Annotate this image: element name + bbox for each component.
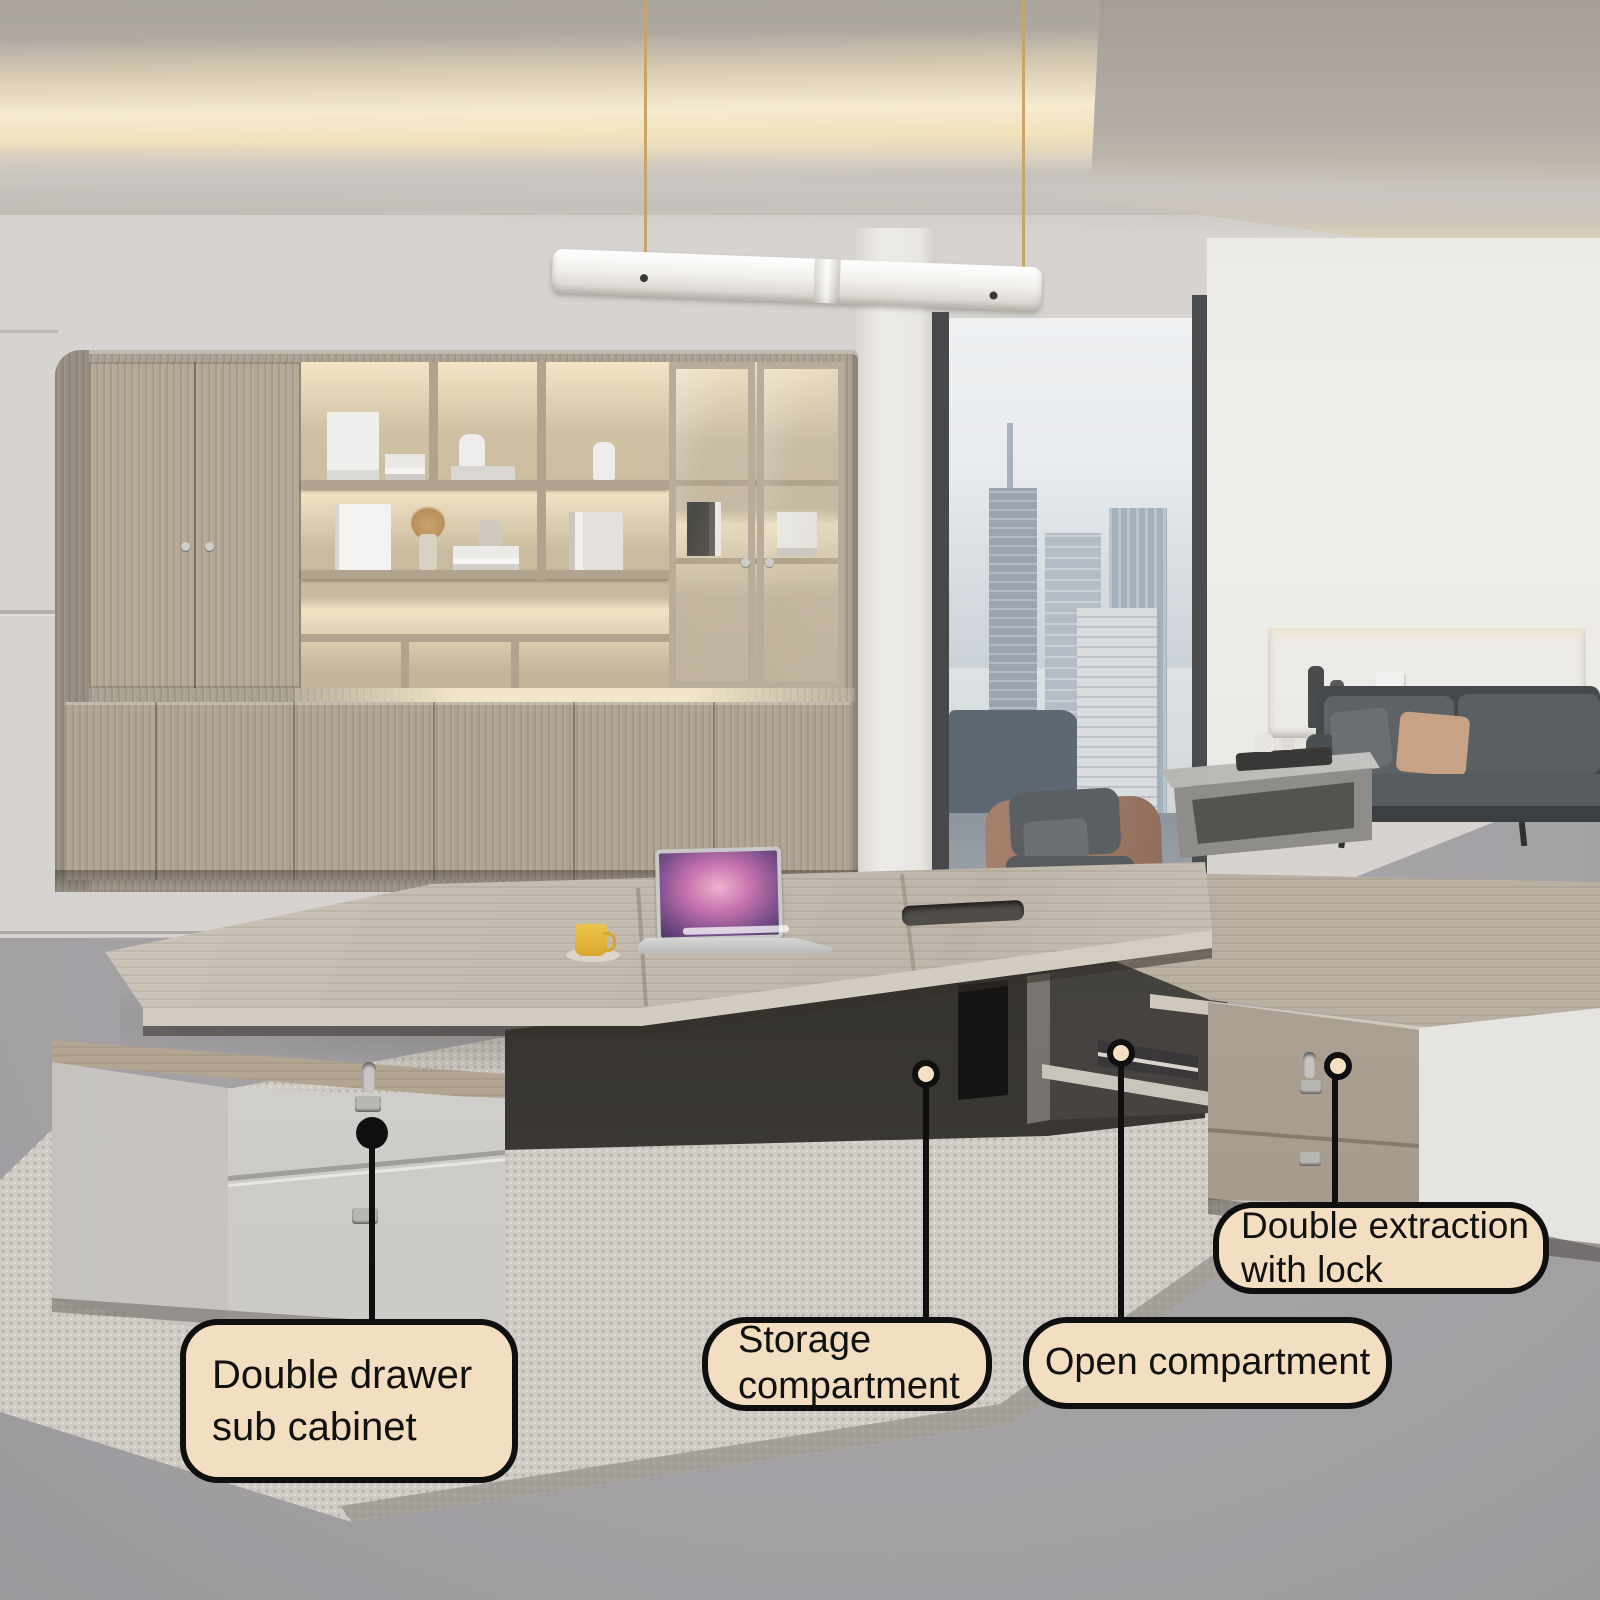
decor-white-box — [327, 412, 379, 480]
cup-handle — [603, 932, 616, 952]
laptop — [638, 848, 838, 960]
decor-white-vase-small — [593, 442, 615, 480]
annotation-dot-extraction — [1324, 1052, 1352, 1080]
callout-open-compartment: Open compartment — [1023, 1317, 1392, 1409]
decor-tray — [451, 466, 515, 480]
callout-double-extraction-with-lock: Double extraction with lock — [1213, 1202, 1549, 1294]
wall-groove-left — [0, 610, 58, 614]
glass-door-knob — [741, 558, 750, 567]
decor-books-right — [569, 512, 623, 570]
laptop-base — [638, 938, 834, 954]
table-kettle — [1254, 732, 1274, 752]
wall-pillar — [856, 228, 936, 943]
door-knob — [205, 542, 214, 551]
pendant-fixture-dot — [640, 274, 648, 282]
shelf-divider — [537, 362, 546, 580]
decor-big-book — [335, 504, 391, 570]
leader-line-extraction — [1332, 1066, 1338, 1208]
right-cabinet-handle — [1300, 1080, 1322, 1094]
glass-door — [757, 362, 845, 688]
laptop-screen — [655, 846, 783, 941]
glass-door-knob — [765, 558, 774, 567]
coffee-cup — [575, 924, 607, 956]
sofa-back-cushion — [1458, 694, 1600, 774]
glass-cabinet — [669, 362, 845, 688]
annotation-dot-double-drawer — [356, 1117, 388, 1149]
pendant-center-joint — [813, 259, 841, 304]
annotation-dot-open — [1107, 1039, 1135, 1067]
pendant-light — [551, 249, 1042, 312]
callout-storage-compartment: Storage compartment — [702, 1317, 992, 1411]
leader-line-storage — [923, 1074, 929, 1323]
left-door-seam — [194, 362, 196, 688]
glass-door — [669, 362, 755, 688]
leader-line-open — [1118, 1053, 1124, 1323]
shelf-divider — [429, 362, 438, 489]
shelf-horizontal — [301, 480, 669, 489]
decor-book-pile — [453, 546, 519, 570]
bottom-door-seam — [573, 702, 575, 880]
sofa-pillow-tan — [1396, 711, 1471, 777]
door-knob — [181, 542, 190, 551]
right-cabinet-lock — [1303, 1052, 1316, 1078]
laptop-display — [659, 850, 779, 937]
shelf-horizontal — [301, 570, 669, 579]
pedestal-lock — [362, 1062, 376, 1092]
decor-plant-vase — [419, 534, 437, 570]
bottom-door-seam — [155, 702, 157, 880]
leader-line-double-drawer — [369, 1133, 375, 1325]
coffee-table — [1158, 748, 1382, 868]
pendant-fixture-dot — [989, 291, 997, 299]
wall-groove-upper — [0, 330, 58, 333]
bookcase — [55, 350, 858, 892]
sofa-leg — [1519, 822, 1527, 846]
office-scene: Double drawer sub cabinet Storage compar… — [0, 0, 1600, 1600]
shelf-horizontal — [301, 634, 669, 642]
window-frame-left — [932, 312, 949, 944]
pendant-cable — [1022, 0, 1025, 305]
pendant-cable — [644, 0, 647, 268]
annotation-dot-storage — [912, 1060, 940, 1088]
callout-double-drawer-sub-cabinet: Double drawer sub cabinet — [180, 1319, 518, 1483]
bottom-door-seam — [293, 702, 295, 880]
laptop-dock-bar — [683, 925, 789, 935]
decor-book-stack — [385, 454, 425, 480]
open-shelving — [301, 362, 669, 688]
callout-label: Storage compartment — [738, 1318, 966, 1409]
table-cup — [1282, 738, 1294, 750]
callout-label: Double drawer sub cabinet — [212, 1349, 486, 1453]
pedestal-handle — [355, 1096, 381, 1112]
shelf-divider — [511, 634, 519, 688]
right-cabinet-handle — [1299, 1152, 1321, 1166]
bottom-door-seam — [433, 702, 435, 880]
shelf-divider — [401, 634, 409, 688]
callout-label: Double extraction with lock — [1241, 1204, 1529, 1293]
callout-label: Open compartment — [1041, 1340, 1374, 1386]
counter-light-strip — [295, 688, 855, 702]
